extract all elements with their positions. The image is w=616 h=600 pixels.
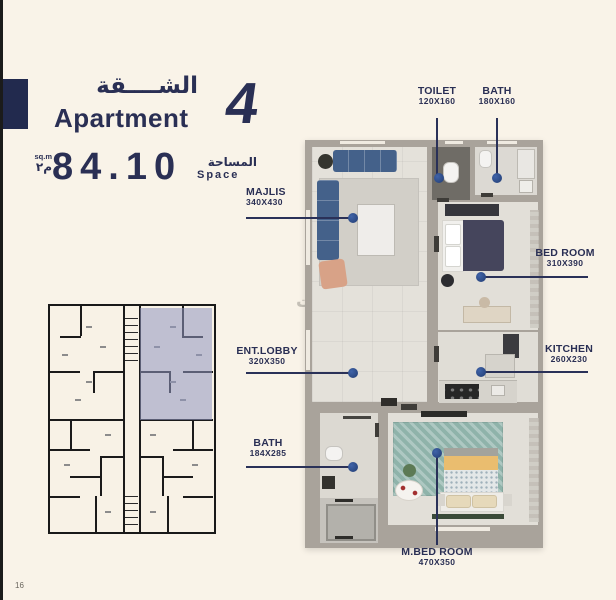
bath-wc: [479, 150, 492, 168]
master-bed-duvet: [444, 470, 498, 494]
leader-entlobby: [246, 372, 353, 374]
dot-master-bedroom: [432, 448, 442, 458]
keyplan-stair-tread: [125, 339, 138, 340]
bath-door: [481, 193, 493, 197]
keyplan-stair-tread: [125, 517, 138, 518]
bedroom-nightstand: [441, 274, 454, 287]
leader-master-bedroom: [436, 453, 438, 545]
master-pouf: [395, 480, 423, 501]
keyplan-wall: [140, 456, 163, 458]
room-dims: 320X350: [227, 357, 307, 367]
room-label-majlis: MAJLIS 340X430: [246, 186, 336, 208]
kitchen-sink: [491, 385, 505, 396]
toilet-door: [437, 198, 449, 202]
room-label-bath-lower: BATH 184X285: [228, 437, 308, 459]
bedroom-wardrobe: [445, 204, 499, 216]
keyplan-stair-tread: [125, 353, 138, 354]
dot-entlobby: [348, 368, 358, 378]
keyplan-label-mark: [62, 354, 68, 356]
window: [435, 527, 490, 531]
master-bed-blanket: [444, 456, 498, 470]
apartment-title: Apartment: [54, 103, 189, 134]
keyplan-wall: [100, 456, 102, 496]
dot-kitchen: [476, 367, 486, 377]
leader-toilet: [436, 118, 438, 175]
master-pillow: [446, 495, 471, 508]
keyplan-label-mark: [105, 434, 111, 436]
bed-blanket: [463, 220, 504, 271]
shower-handle: [335, 536, 353, 539]
header-accent-block: [3, 79, 28, 129]
area-label-en: Space: [197, 169, 257, 181]
keyplan-label-mark: [100, 346, 106, 348]
bedroom-door: [434, 236, 439, 252]
dot-toilet: [434, 173, 444, 183]
keyplan-wall: [183, 496, 213, 498]
keyplan-wall: [50, 371, 80, 373]
keyplan-wall: [60, 336, 81, 338]
bedroom-desk: [463, 306, 511, 323]
area-value: 84.10: [52, 146, 182, 189]
bath-lower-sink: [322, 476, 335, 489]
keyplan-wall: [50, 419, 123, 421]
keyplan-stair-tread: [125, 332, 138, 333]
leader-kitchen: [481, 371, 588, 373]
keyplan-stair-tread: [125, 503, 138, 504]
kitchen-stove: [445, 384, 479, 399]
bed-pillow: [445, 246, 461, 267]
leader-bedroom: [481, 276, 588, 278]
keyplan-label-mark: [64, 464, 70, 466]
window: [445, 141, 463, 144]
keyplan-wall: [95, 496, 97, 532]
room-label-master-bedroom: M.BED ROOM 470X350: [397, 546, 477, 568]
room-label-bath: BATH 180X160: [455, 85, 539, 107]
keyplan-wall: [50, 496, 80, 498]
keyplan-stair-tread: [125, 510, 138, 511]
kitchen-door: [434, 346, 439, 362]
area-units: sq.m م٢: [24, 153, 52, 173]
entrance-door: [381, 398, 397, 406]
bath-lower-wc: [325, 446, 343, 461]
area-labels: المساحة Space: [197, 156, 257, 181]
keyplan-wall: [93, 371, 95, 393]
keyplan-label-mark: [105, 511, 111, 513]
keyplan-wall: [163, 476, 193, 478]
room-dims: 260X230: [529, 355, 609, 365]
master-shelf: [421, 411, 467, 417]
dot-bedroom: [476, 272, 486, 282]
keyplan-wall: [173, 449, 213, 451]
apartment-title-arabic: الشــــقة: [50, 72, 198, 99]
room-dims: 340X430: [246, 198, 336, 208]
majlis-side-table: [318, 154, 333, 169]
room-dims: 310X390: [525, 259, 605, 269]
majlis-coffee-table: [357, 204, 395, 256]
room-dims: 180X160: [455, 97, 539, 107]
plant: [403, 464, 416, 477]
room-label-bedroom: BED ROOM 310X390: [525, 247, 605, 269]
bath-vanity: [517, 149, 535, 179]
keyplan-label-mark: [150, 511, 156, 513]
room-dims: 184X285: [228, 449, 308, 459]
keyplan-wall: [167, 496, 169, 532]
master-bench: [432, 514, 504, 519]
keyplan-stair-tread: [125, 524, 138, 525]
master-bed-headrail: [444, 448, 498, 456]
leader-majlis: [246, 217, 353, 219]
majlis-armchair: [318, 258, 348, 289]
keyplan-stair-tread: [125, 346, 138, 347]
keyplan-stair-tread: [125, 360, 138, 361]
brochure-page: { "header": { "title_ar": "الشــــقة", "…: [0, 0, 616, 600]
master-balcony-strip: [529, 418, 539, 522]
keyplan-wall: [100, 456, 123, 458]
dot-bath-lower: [348, 462, 358, 472]
majlis-sofa-top: [333, 150, 397, 172]
keyplan-stair-tread: [125, 318, 138, 319]
room-label-kitchen: KITCHEN 260X230: [529, 343, 609, 365]
keyplan-stair-tread: [125, 325, 138, 326]
bath-sink: [519, 180, 533, 193]
keyplan-wall: [70, 476, 100, 478]
leader-bath: [496, 118, 498, 175]
bath-lower-door: [375, 423, 379, 437]
room-label-entlobby: ENT.LOBBY 320X350: [227, 345, 307, 367]
keyplan-label-mark: [75, 399, 81, 401]
bedroom-chair: [479, 297, 490, 308]
area-unit-ar: م٢: [24, 161, 52, 174]
master-pillow: [472, 495, 497, 508]
keyplan-label-mark: [86, 326, 92, 328]
keyplan-label-mark: [192, 464, 198, 466]
leader-bath-lower: [246, 466, 353, 468]
keyplan-highlighted-unit: [140, 308, 212, 420]
keyplan-wall: [70, 419, 72, 450]
main-floorplan: [305, 140, 543, 548]
towel-rail: [343, 416, 371, 419]
page-number: 16: [15, 581, 24, 590]
keyplan-stair-tread: [125, 496, 138, 497]
unit-number: 4: [221, 70, 263, 137]
keyplan-wall: [50, 449, 90, 451]
master-side-table: [503, 494, 512, 506]
dot-bath: [492, 173, 502, 183]
keyplan-label-mark: [86, 381, 92, 383]
bedroom-balcony-strip: [530, 210, 539, 328]
keyplan-wall: [80, 306, 82, 336]
keyplan-wall: [93, 371, 123, 373]
kitchen-island: [485, 354, 515, 378]
window: [487, 141, 517, 144]
shower-handle: [335, 499, 353, 502]
room-dims: 470X350: [397, 558, 477, 568]
key-plan: [48, 304, 216, 534]
keyplan-wall: [192, 419, 194, 450]
master-bedroom-door: [401, 404, 417, 410]
dot-majlis: [348, 213, 358, 223]
window: [340, 141, 385, 144]
toilet-wc: [443, 162, 459, 183]
area-label-ar: المساحة: [197, 156, 257, 169]
bed-pillow: [445, 224, 461, 245]
keyplan-label-mark: [150, 434, 156, 436]
